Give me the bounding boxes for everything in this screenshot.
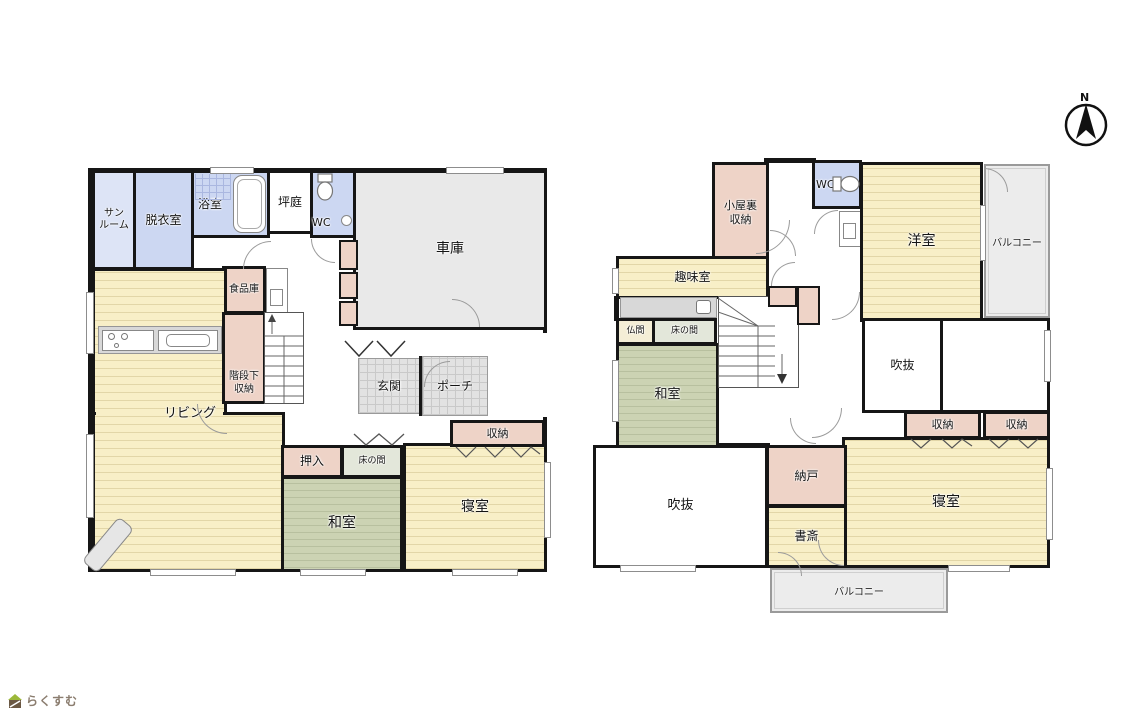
brand-logo-text: らくすむ xyxy=(26,692,78,709)
bathtub-inner xyxy=(237,179,262,229)
floor1-exterior-cutout xyxy=(492,333,554,417)
room-study-label: 書斎 xyxy=(794,529,818,544)
stove-burner-icon xyxy=(114,343,119,348)
stove-burner-icon xyxy=(108,333,115,340)
room-entrance-label: 玄関 xyxy=(377,379,401,394)
kitchen-sink-bowl xyxy=(166,334,210,347)
window xyxy=(210,167,254,174)
window xyxy=(452,569,518,576)
room-western: 洋室 xyxy=(860,162,983,322)
stove-burner-icon xyxy=(121,333,128,340)
room-dressing: 脱衣室 xyxy=(133,170,194,270)
accordion-door-icon xyxy=(988,438,1044,449)
window xyxy=(612,268,619,294)
room-storage-1f-label: 収納 xyxy=(487,427,509,441)
brand-logo: らくすむ xyxy=(8,692,78,709)
stair-closet-b xyxy=(797,286,820,325)
room-living-lower xyxy=(92,412,285,572)
toilet-icon xyxy=(315,173,335,201)
window xyxy=(1044,330,1051,382)
room-garage: 車庫 xyxy=(353,170,547,330)
room-storage-2f-b-label: 収納 xyxy=(1006,418,1028,432)
room-bedroom-1f-label: 寝室 xyxy=(461,499,489,517)
room-courtyard-label: 坪庭 xyxy=(278,195,302,210)
room-japanese-2f: 和室 xyxy=(616,343,719,448)
window xyxy=(544,462,551,538)
window xyxy=(612,360,619,422)
room-courtyard: 坪庭 xyxy=(267,170,313,234)
counter-sink-icon xyxy=(696,300,711,314)
room-bedroom-1f: 寝室 xyxy=(403,443,547,572)
accordion-door-icon xyxy=(353,433,405,446)
room-storage-2f-a: 収納 xyxy=(904,411,981,439)
room-sunroom-label: サン ルーム xyxy=(99,208,129,233)
window xyxy=(86,292,94,354)
window xyxy=(948,565,1010,572)
room-void-upper: 吹抜 xyxy=(862,318,943,413)
floor-plan-canvas: サン ルーム 脱衣室 浴室 坪庭 WC 車庫 食品庫 リビング 階段下 収納 xyxy=(0,0,1143,715)
room-bedroom-2f: 寝室 xyxy=(842,437,1050,568)
room-bedroom-2f-label: 寝室 xyxy=(932,494,960,512)
room-oshiire-label: 押入 xyxy=(300,454,324,469)
room-hobby: 趣味室 xyxy=(616,256,769,299)
room-tokonoma-2f: 床の間 xyxy=(652,318,717,345)
room-void-lower-label: 吹抜 xyxy=(667,498,693,514)
window xyxy=(300,569,366,576)
bath-tile-area xyxy=(195,174,231,200)
window xyxy=(980,205,986,261)
room-garage-label: 車庫 xyxy=(436,241,464,259)
hall-closet-3 xyxy=(339,301,358,326)
room-dressing-label: 脱衣室 xyxy=(145,213,181,228)
compass-n: N xyxy=(1080,91,1089,104)
open-area-2f xyxy=(940,318,1050,413)
compass-icon: N xyxy=(1058,88,1114,150)
toilet-icon xyxy=(832,174,860,194)
room-sunroom: サン ルーム xyxy=(92,170,136,270)
hall-closet-1 xyxy=(339,240,358,270)
window xyxy=(86,434,94,518)
toilet-sink-icon xyxy=(341,215,352,226)
room-toilet-1f-label: WC xyxy=(312,216,331,229)
room-hobby-label: 趣味室 xyxy=(674,270,710,285)
room-butsuma: 仏間 xyxy=(616,318,655,345)
room-entrance: 玄関 xyxy=(358,358,420,414)
room-japanese-1f-label: 和室 xyxy=(328,515,356,533)
stairs-1f xyxy=(264,312,304,404)
room-void-lower: 吹抜 xyxy=(593,445,768,568)
room-pantry-label: 食品庫 xyxy=(229,284,259,297)
room-japanese-2f-label: 和室 xyxy=(654,387,680,403)
room-storage-2f-b: 収納 xyxy=(983,411,1050,439)
room-balcony-south-label: バルコニー xyxy=(834,583,884,598)
window xyxy=(446,167,504,174)
stair-closet-a xyxy=(768,286,797,307)
window xyxy=(1046,468,1053,540)
room-storage-2f-a-label: 収納 xyxy=(932,418,954,432)
room-void-upper-label: 吹抜 xyxy=(890,358,914,373)
room-under-stairs-label: 階段下 収納 xyxy=(229,371,259,396)
brand-house-icon xyxy=(8,694,22,708)
room-storeroom: 納戸 xyxy=(766,445,847,507)
hall-closet-2 xyxy=(339,272,358,299)
room-japanese-1f: 和室 xyxy=(281,476,403,572)
window xyxy=(620,565,696,572)
washbasin-2f-bowl xyxy=(843,223,856,239)
room-tokonoma-2f-label: 床の間 xyxy=(671,326,698,337)
room-tokonoma-1f-label: 床の間 xyxy=(358,456,385,467)
room-oshiire: 押入 xyxy=(281,445,343,478)
accordion-door-icon xyxy=(455,446,541,458)
room-storage-1f: 収納 xyxy=(450,420,545,447)
washbasin-1f-bowl xyxy=(270,289,283,306)
accordion-door-icon xyxy=(910,438,974,449)
room-attic-storage-label: 小屋裏 収納 xyxy=(724,199,757,227)
room-butsuma-label: 仏間 xyxy=(626,326,644,337)
room-under-stairs: 階段下 収納 xyxy=(222,312,266,404)
stairs-2f xyxy=(718,296,799,388)
entrance-double-door-icon xyxy=(344,340,406,358)
room-balcony-east-label: バルコニー xyxy=(992,234,1042,249)
room-western-label: 洋室 xyxy=(908,233,936,251)
room-tokonoma-1f: 床の間 xyxy=(341,445,403,478)
room-pantry: 食品庫 xyxy=(222,266,266,314)
wall-segment xyxy=(764,158,816,163)
room-storeroom-label: 納戸 xyxy=(794,469,818,484)
window xyxy=(150,569,236,576)
